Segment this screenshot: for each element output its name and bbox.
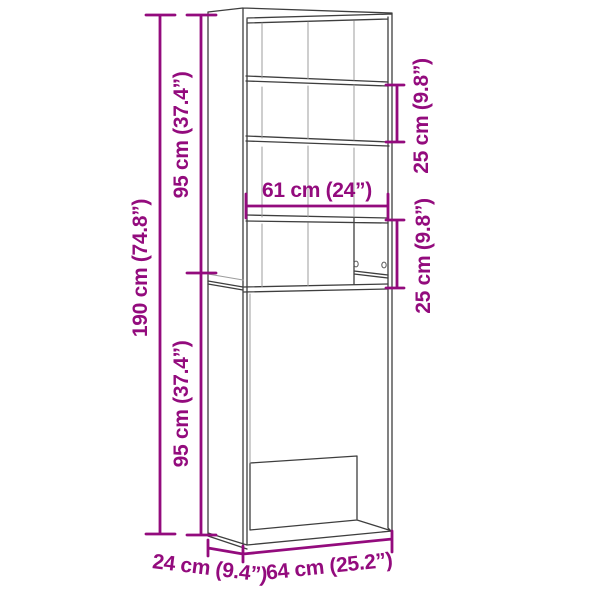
cabinet-interior-lines: [208, 21, 354, 463]
screw-hole-icon: [382, 262, 386, 268]
label-inner-width: 61 cm (24”): [262, 179, 372, 202]
label-lower-height: 95 cm (37.4”): [170, 341, 193, 468]
label-depth: 24 cm (9.4”): [151, 550, 268, 587]
label-middle-shelf-spacing: 25 cm (9.8”): [412, 198, 435, 313]
dimension-line-middle-shelf-spacing: [386, 220, 404, 288]
cabinet-back-panel: [250, 456, 357, 530]
label-outer-width: 64 cm (25.2”): [265, 548, 394, 584]
cabinet-dimension-diagram: 190 cm (74.8”) 95 cm (37.4”) 95 cm (37.4…: [0, 0, 600, 600]
diagram-canvas: 190 cm (74.8”) 95 cm (37.4”) 95 cm (37.4…: [0, 0, 600, 600]
label-upper-height: 95 cm (37.4”): [170, 72, 193, 199]
label-total-height: 190 cm (74.8”): [129, 199, 152, 337]
dimension-line-top-shelf-spacing: [386, 85, 404, 142]
label-top-shelf-spacing: 25 cm (9.8”): [410, 58, 433, 173]
